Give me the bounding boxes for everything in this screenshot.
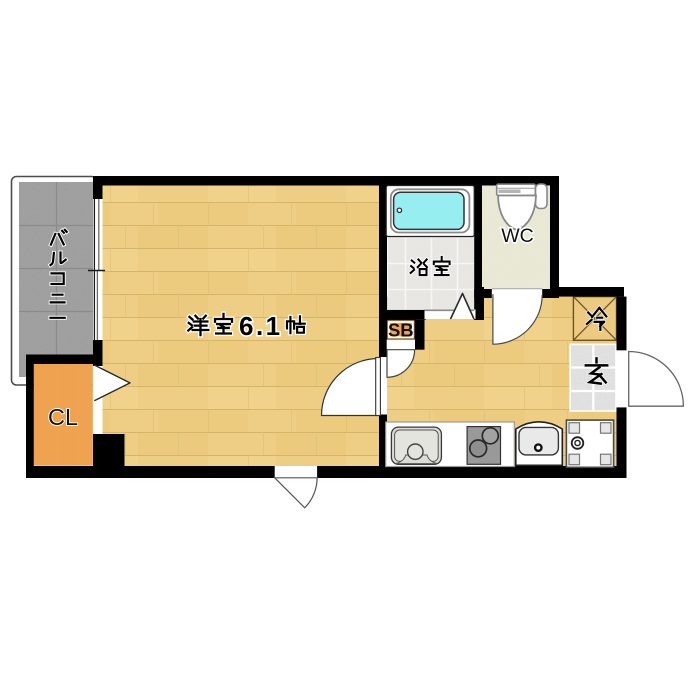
svg-text:6.1: 6.1: [239, 311, 283, 341]
svg-text:WC: WC: [501, 225, 534, 247]
svg-text:CL: CL: [48, 404, 78, 430]
svg-text:SB: SB: [388, 320, 414, 341]
